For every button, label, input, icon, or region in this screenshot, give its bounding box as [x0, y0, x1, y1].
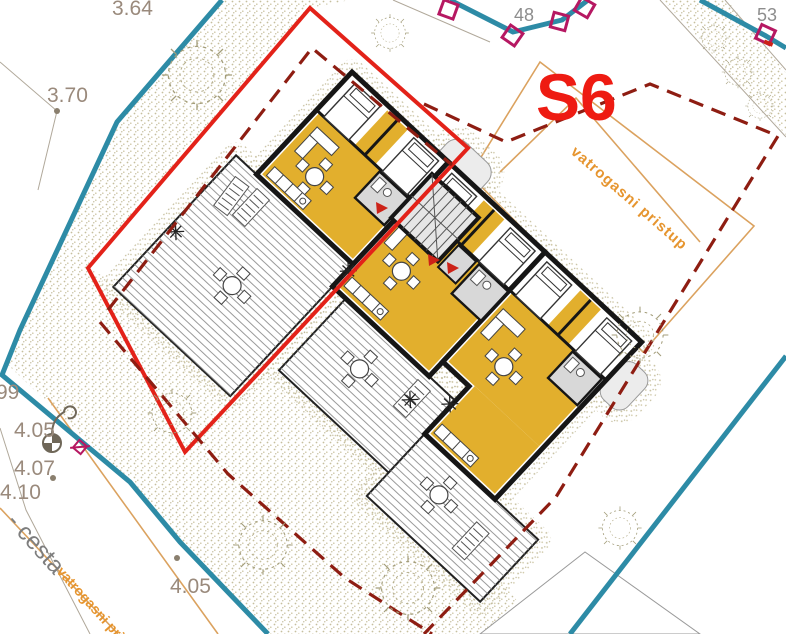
elevation-label-410: 4.10: [0, 481, 41, 504]
spot-elevation-dot: [174, 555, 180, 561]
survey-marker: [439, 0, 458, 19]
elevation-label-407: 4.07: [14, 457, 55, 480]
parcel-number-48: 48: [514, 5, 534, 25]
elevation-label-399: 99: [0, 381, 19, 404]
tree-icon: [371, 14, 409, 52]
site-plan-svg: 3.64 3.70 48 53 S6 vatrogasni pristup 99…: [0, 0, 786, 634]
building-id-label: S6: [536, 60, 617, 134]
site-plan-page: 3.64 3.70 48 53 S6 vatrogasni pristup 99…: [0, 0, 786, 634]
elevation-label-405-bottom: 4.05: [170, 575, 211, 598]
parcel-number-53: 53: [757, 5, 777, 25]
fire-access-label-bottom: vatrogasni pri: [54, 563, 128, 634]
elevation-label-364: 3.64: [112, 0, 153, 20]
spot-elevation-dot: [54, 108, 60, 114]
elevation-label-370: 3.70: [47, 84, 88, 107]
tree-icon: [598, 506, 641, 549]
elevation-label-405-left: 4.05: [14, 419, 55, 442]
contour-line: [0, 62, 57, 190]
